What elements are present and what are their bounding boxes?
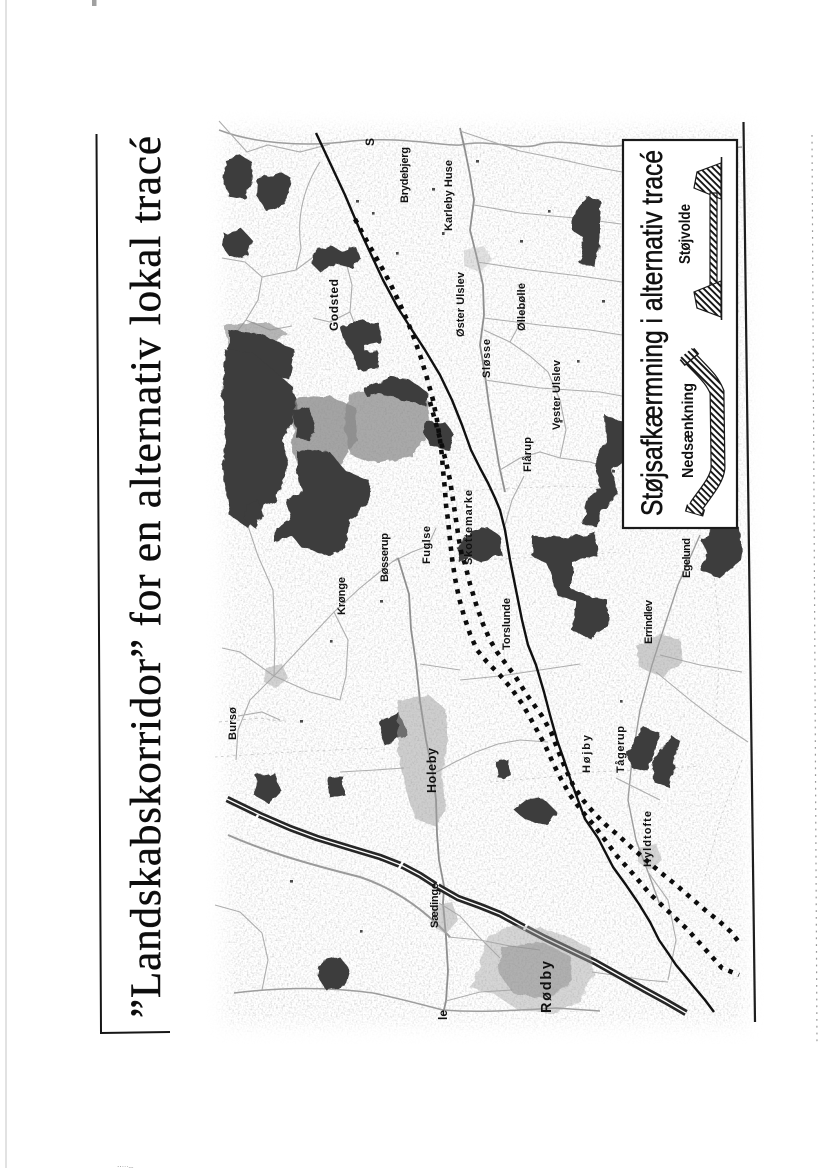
svg-text:Sløsse: Sløsse [481,339,493,378]
svg-text:Errindlev: Errindlev [643,599,655,644]
svg-text:Nedsænkning: Nedsænkning [680,383,697,478]
svg-text:Vester Ulslev: Vester Ulslev [551,359,563,430]
svg-text:Fuglse: Fuglse [421,526,433,564]
svg-text:Krønge: Krønge [336,577,348,615]
svg-text:Rødby: Rødby [539,961,555,1013]
svg-text:Øster Ulslev: Øster Ulslev [455,271,467,337]
svg-text:Støjvolde: Støjvolde [677,204,694,264]
svg-text:Tågerup: Tågerup [615,726,627,773]
svg-text:Øllebølle: Øllebølle [516,283,528,331]
svg-text:Højby: Højby [581,734,593,773]
svg-text:Hyldtofte: Hyldtofte [642,811,654,867]
svg-text:Støjsafkærmning i alternativ t: Støjsafkærmning i alternativ tracé [636,150,669,516]
svg-text:S: S [363,138,377,146]
svg-text:Bøsserup: Bøsserup [379,533,391,582]
svg-text:le: le [436,1010,450,1020]
svg-text:Torslunde: Torslunde [501,598,513,650]
svg-text:Skottemarke: Skottemarke [463,490,475,565]
svg-text:Brydebjerg: Brydebjerg [399,147,411,203]
svg-text:”Landskabskorridor” for en alt: ”Landskabskorridor” for en alternativ lo… [123,136,170,1018]
svg-text:Egelund: Egelund [681,538,693,578]
svg-text:‥…ˍˍ: ‥…ˍˍ [117,1162,134,1168]
svg-text:Godsted: Godsted [327,279,341,331]
svg-text:Holeby: Holeby [425,748,439,793]
svg-text:Flårup: Flårup [522,437,534,472]
svg-text:Karleby Huse: Karleby Huse [443,160,455,231]
svg-text:Bursø: Bursø [227,707,239,740]
svg-text:Sædinge: Sædinge [429,883,441,928]
